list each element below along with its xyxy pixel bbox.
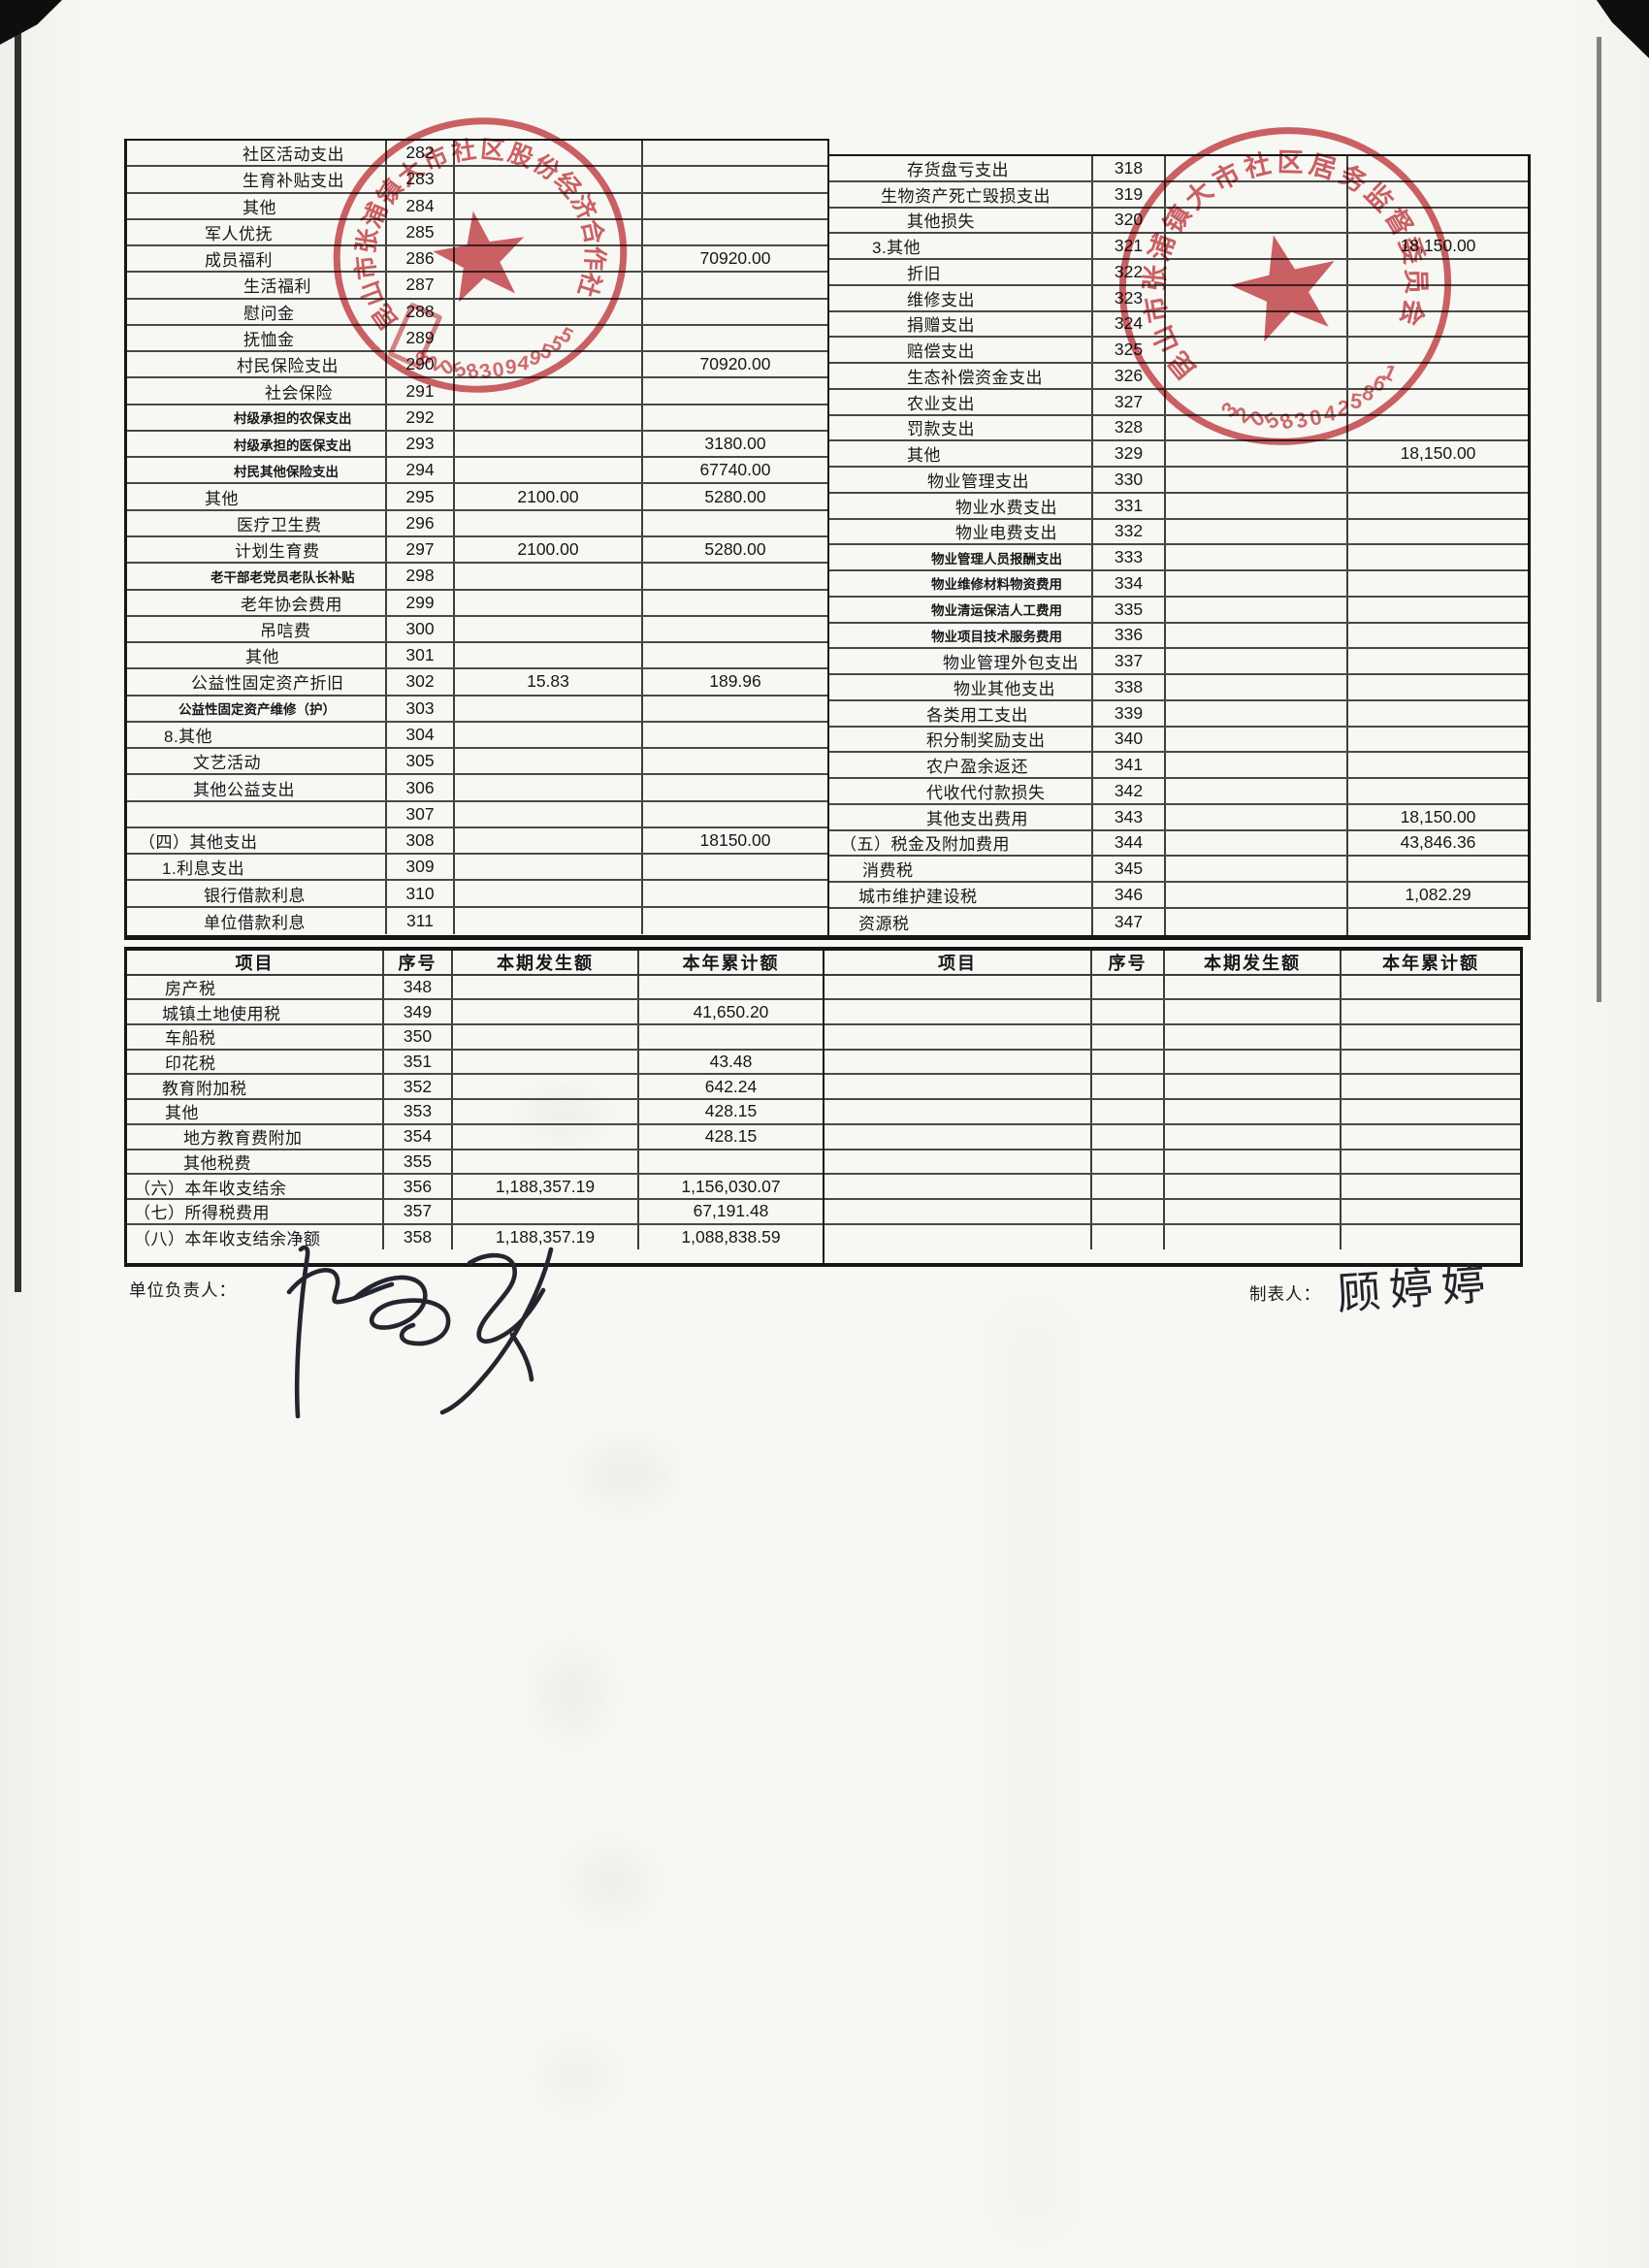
table-row: （四）其他支出 308 18150.00 (127, 828, 827, 855)
row-item-label: 吊唁费 (127, 617, 387, 641)
table-row: 单位借款利息 311 (127, 908, 827, 934)
row-ytd-amount (643, 326, 827, 350)
row-current-period-amount (453, 1100, 639, 1123)
scan-edge-left (15, 0, 21, 1292)
row-line-number: 332 (1093, 520, 1166, 544)
row-current-period-amount (1165, 1075, 1342, 1098)
row-current-period-amount (1165, 1175, 1342, 1198)
row-ytd-amount: 70920.00 (643, 246, 827, 271)
row-current-period-amount (453, 1051, 639, 1074)
svg-text:社: 社 (449, 136, 477, 168)
row-current-period-amount (455, 643, 643, 667)
row-item-label: 8.其他 (127, 723, 387, 747)
table-row: 8.其他 304 (127, 723, 827, 749)
row-ytd-amount: 43,846.36 (1348, 831, 1528, 856)
row-item-label: 教育附加税 (127, 1075, 384, 1098)
row-ytd-amount (643, 802, 827, 826)
row-ytd-amount (643, 749, 827, 773)
table-row: 城镇土地使用税 349 41,650.20 (127, 1000, 823, 1025)
row-item-label: 物业管理支出 (829, 468, 1093, 492)
row-ytd-amount (1342, 1075, 1520, 1098)
table-row: 计划生育费 297 2100.00 5280.00 (127, 537, 827, 564)
svg-text:社: 社 (572, 269, 606, 300)
row-item-label: 3.其他 (829, 234, 1093, 258)
row-ytd-amount (639, 976, 823, 999)
row-item-label: 其他 (127, 643, 387, 667)
row-current-period-amount (453, 1125, 639, 1149)
header-ytd: 本年累计额 (1342, 951, 1520, 974)
row-current-period-amount (1165, 1051, 1342, 1074)
row-ytd-amount: 18150.00 (643, 828, 827, 853)
table-row: 医疗卫生费 296 (127, 511, 827, 537)
row-item-label (127, 802, 387, 826)
row-item-label: 其他 (127, 1100, 384, 1123)
row-item-label: 农户盈余返还 (829, 753, 1093, 777)
row-current-period-amount (455, 723, 643, 747)
row-ytd-amount (1348, 520, 1528, 544)
row-ytd-amount: 43.48 (639, 1051, 823, 1074)
row-ytd-amount (1348, 598, 1528, 622)
header-current-period: 本期发生额 (453, 951, 639, 974)
row-item-label (824, 1075, 1092, 1098)
row-ytd-amount (1348, 701, 1528, 726)
table-row: 村级承担的医保支出 293 3180.00 (127, 432, 827, 458)
svg-text:作: 作 (580, 245, 608, 271)
svg-text:社: 社 (1242, 148, 1274, 183)
table-row: 村级承担的农保支出 292 (127, 405, 827, 432)
preparer-label: 制表人： (1249, 1281, 1321, 1306)
svg-text:9: 9 (504, 356, 517, 379)
row-current-period-amount (455, 881, 643, 905)
row-item-label: 公益性固定资产折旧 (127, 669, 387, 694)
row-ytd-amount (1342, 1125, 1520, 1149)
table-row-empty (824, 976, 1520, 1001)
svg-text:区: 区 (479, 136, 506, 165)
table-row: 教育附加税 352 642.24 (127, 1075, 823, 1100)
table-row: 村民其他保险支出 294 67740.00 (127, 458, 827, 484)
row-current-period-amount: 2100.00 (455, 484, 643, 508)
row-current-period-amount (1166, 805, 1348, 829)
row-item-label: 其他支出费用 (829, 805, 1093, 829)
row-ytd-amount (643, 643, 827, 667)
row-current-period-amount (1166, 598, 1348, 622)
row-item-label: 折旧 (829, 260, 1093, 284)
table-row-empty (824, 1200, 1520, 1225)
row-line-number: 341 (1093, 753, 1166, 777)
row-current-period-amount (455, 617, 643, 641)
svg-text:居: 居 (1307, 149, 1340, 184)
row-current-period-amount (1165, 1100, 1342, 1123)
tax-and-surplus-table: 项目 序号 本期发生额 本年累计额 房产税 348 城镇土地使用税 349 (124, 947, 1523, 1267)
row-item-label: 物业管理外包支出 (829, 649, 1093, 673)
row-ytd-amount (643, 220, 827, 244)
row-ytd-amount (643, 405, 827, 430)
row-ytd-amount (1342, 1100, 1520, 1123)
table-row: 物业管理人员报酬支出 333 (829, 545, 1528, 571)
row-current-period-amount (455, 458, 643, 482)
table-row: 其他 295 2100.00 5280.00 (127, 484, 827, 510)
row-line-number: 352 (384, 1075, 453, 1098)
row-ytd-amount (1342, 1150, 1520, 1174)
scan-smudge (572, 1848, 650, 1916)
row-current-period-amount (1166, 571, 1348, 596)
row-current-period-amount (1166, 831, 1348, 856)
row-line-number: 340 (1093, 728, 1166, 752)
table-row: 物业其他支出 338 (829, 675, 1528, 701)
row-line-number: 350 (384, 1025, 453, 1049)
row-ytd-amount (1348, 753, 1528, 777)
row-line-number (1092, 1200, 1165, 1223)
table-row: 老年协会费用 299 (127, 591, 827, 617)
row-item-label: 文艺活动 (127, 749, 387, 773)
row-line-number (1092, 1225, 1165, 1250)
table-row-empty (824, 1025, 1520, 1051)
row-item-label: 存货盘亏支出 (829, 156, 1093, 180)
scan-smudge (538, 1649, 606, 1736)
table-header-row: 项目 序号 本期发生额 本年累计额 (824, 951, 1520, 976)
row-item-label: （五）税金及附加费用 (829, 831, 1093, 856)
row-item-label: 消费税 (829, 857, 1093, 881)
row-ytd-amount (1348, 675, 1528, 699)
row-current-period-amount (455, 855, 643, 879)
row-item-label: 物业电费支出 (829, 520, 1093, 544)
table-row: 307 (127, 802, 827, 828)
row-item-label: 积分制奖励支出 (829, 728, 1093, 752)
row-line-number: 301 (387, 643, 455, 667)
table-row-empty (824, 1175, 1520, 1200)
row-line-number: 337 (1093, 649, 1166, 673)
row-ytd-amount (643, 300, 827, 324)
unit-head-signature (231, 1242, 580, 1426)
row-current-period-amount (1166, 675, 1348, 699)
table-row: 物业管理外包支出 337 (829, 649, 1528, 675)
row-ytd-amount: 67740.00 (643, 458, 827, 482)
row-item-label: 公益性固定资产维修（护） (127, 697, 387, 721)
table-header-row: 项目 序号 本期发生额 本年累计额 (127, 951, 823, 976)
row-item-label: 村级承担的医保支出 (127, 432, 387, 456)
row-ytd-amount (1348, 857, 1528, 881)
table-row: 公益性固定资产维修（护） 303 (127, 697, 827, 723)
row-line-number: 344 (1093, 831, 1166, 856)
row-line-number: 334 (1093, 571, 1166, 596)
svg-text:浦: 浦 (1144, 230, 1180, 265)
row-line-number: 355 (384, 1150, 453, 1174)
row-line-number: 353 (384, 1100, 453, 1123)
row-item-label: 其他公益支出 (127, 775, 387, 799)
row-item-label: 村民其他保险支出 (127, 458, 387, 482)
scanned-financial-statement-page: 社区活动支出 282 生育补贴支出 283 其他 284 军人优抚 285 (0, 0, 1649, 2268)
row-ytd-amount: 1,156,030.07 (639, 1175, 823, 1198)
svg-text:合: 合 (576, 217, 609, 247)
unit-head-label: 单位负责人： (129, 1278, 237, 1302)
row-item-label: 物业项目技术服务费用 (829, 624, 1093, 648)
table-row: 物业项目技术服务费用 336 (829, 624, 1528, 650)
row-item-label: 计划生育费 (127, 537, 387, 562)
header-current-period: 本期发生额 (1165, 951, 1342, 974)
row-item-label (824, 976, 1092, 999)
table-row: 车船税 350 (127, 1025, 823, 1051)
row-line-number: 300 (387, 617, 455, 641)
scan-shadow-band (999, 1310, 1067, 2231)
scan-edge-right (1597, 37, 1601, 1002)
row-current-period-amount (1165, 1200, 1342, 1223)
row-ytd-amount (643, 855, 827, 879)
table-row: （七）所得税费用 357 67,191.48 (127, 1200, 823, 1225)
row-ytd-amount (1348, 571, 1528, 596)
row-ytd-amount (643, 591, 827, 615)
table-row: 其他 353 428.15 (127, 1100, 823, 1125)
row-current-period-amount (1166, 857, 1348, 881)
row-item-label: （七）所得税费用 (127, 1200, 384, 1223)
row-ytd-amount (639, 1150, 823, 1174)
row-line-number: 308 (387, 828, 455, 853)
table-row-empty (824, 1051, 1520, 1076)
row-item-label: 物业水费支出 (829, 494, 1093, 518)
header-line-number: 序号 (1092, 951, 1165, 974)
row-ytd-amount (1348, 909, 1528, 935)
row-line-number (1092, 1000, 1165, 1023)
row-line-number (1092, 1075, 1165, 1098)
row-line-number: 342 (1093, 779, 1166, 803)
row-ytd-amount (643, 141, 827, 165)
row-item-label: 银行借款利息 (127, 881, 387, 905)
row-line-number: 333 (1093, 545, 1166, 569)
svg-text:山: 山 (1148, 321, 1184, 357)
row-current-period-amount: 15.83 (455, 669, 643, 694)
row-ytd-amount (1342, 976, 1520, 999)
row-item-label: 地方教育费附加 (127, 1125, 384, 1149)
row-line-number: 347 (1093, 909, 1166, 935)
svg-text:市: 市 (1208, 157, 1245, 196)
svg-text:张: 张 (1140, 263, 1171, 292)
header-ytd: 本年累计额 (639, 951, 823, 974)
row-ytd-amount (1342, 1025, 1520, 1049)
scan-smudge (543, 2047, 611, 2105)
svg-text:2: 2 (1338, 396, 1350, 420)
row-current-period-amount (1166, 701, 1348, 726)
row-item-label: 代收代付款损失 (829, 779, 1093, 803)
row-line-number: 351 (384, 1051, 453, 1074)
row-current-period-amount (1165, 976, 1342, 999)
row-line-number (1092, 1051, 1165, 1074)
row-ytd-amount (643, 617, 827, 641)
table-row: 地方教育费附加 354 428.15 (127, 1125, 823, 1150)
table-row: 物业维修材料物资费用 334 (829, 571, 1528, 598)
row-line-number: 345 (1093, 857, 1166, 881)
table-row: 消费税 345 (829, 857, 1528, 883)
scan-smudge (582, 1445, 669, 1504)
header-line-number: 序号 (384, 951, 453, 974)
table-row: 物业电费支出 332 (829, 520, 1528, 546)
header-item: 项目 (127, 951, 384, 974)
row-current-period-amount (455, 405, 643, 430)
row-item-label: 其他 (127, 484, 387, 508)
row-line-number: 356 (384, 1175, 453, 1198)
svg-text:0: 0 (491, 358, 505, 382)
table-row: 文艺活动 305 (127, 749, 827, 775)
row-line-number: 346 (1093, 883, 1166, 907)
row-item-label: 物业维修材料物资费用 (829, 571, 1093, 596)
table-row-empty (824, 1225, 1520, 1250)
scan-corner-top-left (0, 0, 62, 45)
row-current-period-amount (1165, 1125, 1342, 1149)
row-line-number: 343 (1093, 805, 1166, 829)
row-line-number: 302 (387, 669, 455, 694)
row-item-label (824, 1100, 1092, 1123)
row-ytd-amount (1342, 1225, 1520, 1250)
row-item-label (824, 1125, 1092, 1149)
row-line-number: 297 (387, 537, 455, 562)
row-ytd-amount (643, 273, 827, 297)
table-row: 老干部老党员老队长补贴 298 (127, 564, 827, 590)
row-ytd-amount: 70920.00 (643, 352, 827, 376)
row-line-number: 298 (387, 564, 455, 588)
row-ytd-amount (1348, 494, 1528, 518)
row-ytd-amount (643, 723, 827, 747)
row-item-label: 生态补偿资金支出 (829, 364, 1093, 388)
row-item-label: 村级承担的农保支出 (127, 405, 387, 430)
row-line-number: 309 (387, 855, 455, 879)
row-item-label: 城镇土地使用税 (127, 1000, 384, 1023)
table-row: 其他公益支出 306 (127, 775, 827, 801)
row-current-period-amount (453, 1200, 639, 1223)
row-ytd-amount (1342, 1175, 1520, 1198)
table-row: 物业水费支出 331 (829, 494, 1528, 520)
table-row: 银行借款利息 310 (127, 881, 827, 907)
row-ytd-amount (1348, 545, 1528, 569)
row-ytd-amount (1342, 1051, 1520, 1074)
row-item-label: 1.利息支出 (127, 855, 387, 879)
row-item-label: 捐赠支出 (829, 312, 1093, 337)
row-current-period-amount (1166, 909, 1348, 935)
row-item-label: 印花税 (127, 1051, 384, 1074)
row-ytd-amount (643, 908, 827, 934)
row-current-period-amount (1166, 728, 1348, 752)
row-line-number: 349 (384, 1000, 453, 1023)
row-line-number: 335 (1093, 598, 1166, 622)
row-current-period-amount (455, 908, 643, 934)
table-row: 房产税 348 (127, 976, 823, 1001)
table-row: 城市维护建设税 346 1,082.29 (829, 883, 1528, 909)
row-current-period-amount (455, 802, 643, 826)
row-current-period-amount (453, 1000, 639, 1023)
official-stamp-economic-cooperative: 昆山市张浦镇大市社区股份经济合作社3205830949555 (309, 92, 651, 419)
row-ytd-amount (639, 1025, 823, 1049)
table-row: 公益性固定资产折旧 302 15.83 189.96 (127, 669, 827, 696)
row-current-period-amount (455, 511, 643, 535)
row-item-label: 单位借款利息 (127, 908, 387, 934)
row-line-number: 304 (387, 723, 455, 747)
row-current-period-amount (1166, 753, 1348, 777)
table-row: 其他支出费用 343 18,150.00 (829, 805, 1528, 831)
row-item-label: （六）本年收支结余 (127, 1175, 384, 1198)
row-ytd-amount: 1,088,838.59 (639, 1225, 823, 1250)
row-item-label: 房产税 (127, 976, 384, 999)
row-ytd-amount (643, 194, 827, 218)
table-row: （五）税金及附加费用 344 43,846.36 (829, 831, 1528, 858)
header-item: 项目 (824, 951, 1092, 974)
svg-text:市: 市 (1139, 294, 1173, 325)
row-current-period-amount (453, 1075, 639, 1098)
row-current-period-amount (1165, 1025, 1342, 1049)
row-line-number: 354 (384, 1125, 453, 1149)
table-row: 积分制奖励支出 340 (829, 728, 1528, 754)
row-line-number: 311 (387, 908, 455, 934)
row-current-period-amount (1166, 883, 1348, 907)
row-line-number (1092, 1025, 1165, 1049)
row-line-number: 357 (384, 1200, 453, 1223)
row-ytd-amount (1348, 649, 1528, 673)
row-ytd-amount (643, 775, 827, 799)
row-line-number: 294 (387, 458, 455, 482)
row-item-label: 物业清运保洁人工费用 (829, 598, 1093, 622)
row-line-number: 305 (387, 749, 455, 773)
table-row: （六）本年收支结余 356 1,188,357.19 1,156,030.07 (127, 1175, 823, 1200)
row-current-period-amount (455, 775, 643, 799)
row-line-number (1092, 1100, 1165, 1123)
row-line-number: 296 (387, 511, 455, 535)
row-line-number (1092, 1175, 1165, 1198)
row-current-period-amount (455, 697, 643, 721)
row-ytd-amount: 642.24 (639, 1075, 823, 1098)
row-item-label: 各类用工支出 (829, 701, 1093, 726)
row-current-period-amount (1166, 779, 1348, 803)
row-item-label: 其他税费 (127, 1150, 384, 1174)
row-line-number: 310 (387, 881, 455, 905)
row-current-period-amount: 1,188,357.19 (453, 1175, 639, 1198)
tax-table-left-half: 项目 序号 本期发生额 本年累计额 房产税 348 城镇土地使用税 349 (127, 951, 824, 1263)
row-ytd-amount (643, 378, 827, 403)
row-ytd-amount (1342, 1200, 1520, 1223)
row-current-period-amount (453, 1025, 639, 1049)
row-ytd-amount (1348, 728, 1528, 752)
row-current-period-amount (455, 432, 643, 456)
row-current-period-amount (1165, 1000, 1342, 1023)
row-current-period-amount (455, 564, 643, 588)
row-current-period-amount (455, 828, 643, 853)
row-current-period-amount (1165, 1150, 1342, 1174)
row-current-period-amount (1166, 545, 1348, 569)
table-row: 各类用工支出 339 (829, 701, 1528, 728)
table-row: 其他 301 (127, 643, 827, 669)
row-current-period-amount (455, 591, 643, 615)
row-current-period-amount (1166, 494, 1348, 518)
row-current-period-amount (1166, 649, 1348, 673)
table-row: 资源税 347 (829, 909, 1528, 935)
row-current-period-amount (453, 976, 639, 999)
row-line-number: 303 (387, 697, 455, 721)
row-line-number (1092, 1125, 1165, 1149)
table-row-empty (824, 1000, 1520, 1025)
svg-text:区: 区 (1277, 147, 1304, 178)
row-ytd-amount (643, 564, 827, 588)
row-ytd-amount: 18,150.00 (1348, 805, 1528, 829)
row-ytd-amount: 428.15 (639, 1100, 823, 1123)
svg-text:员: 员 (1401, 268, 1431, 295)
row-line-number: 331 (1093, 494, 1166, 518)
row-line-number: 336 (1093, 624, 1166, 648)
row-item-label: 城市维护建设税 (829, 883, 1093, 907)
row-item-label: 其他损失 (829, 209, 1093, 233)
row-ytd-amount (1348, 468, 1528, 492)
row-ytd-amount (643, 167, 827, 191)
row-ytd-amount: 18,150.00 (1348, 441, 1528, 466)
table-row: 1.利息支出 309 (127, 855, 827, 881)
row-ytd-amount: 1,082.29 (1348, 883, 1528, 907)
row-current-period-amount (1165, 1225, 1342, 1250)
row-ytd-amount (643, 881, 827, 905)
row-ytd-amount (1348, 624, 1528, 648)
